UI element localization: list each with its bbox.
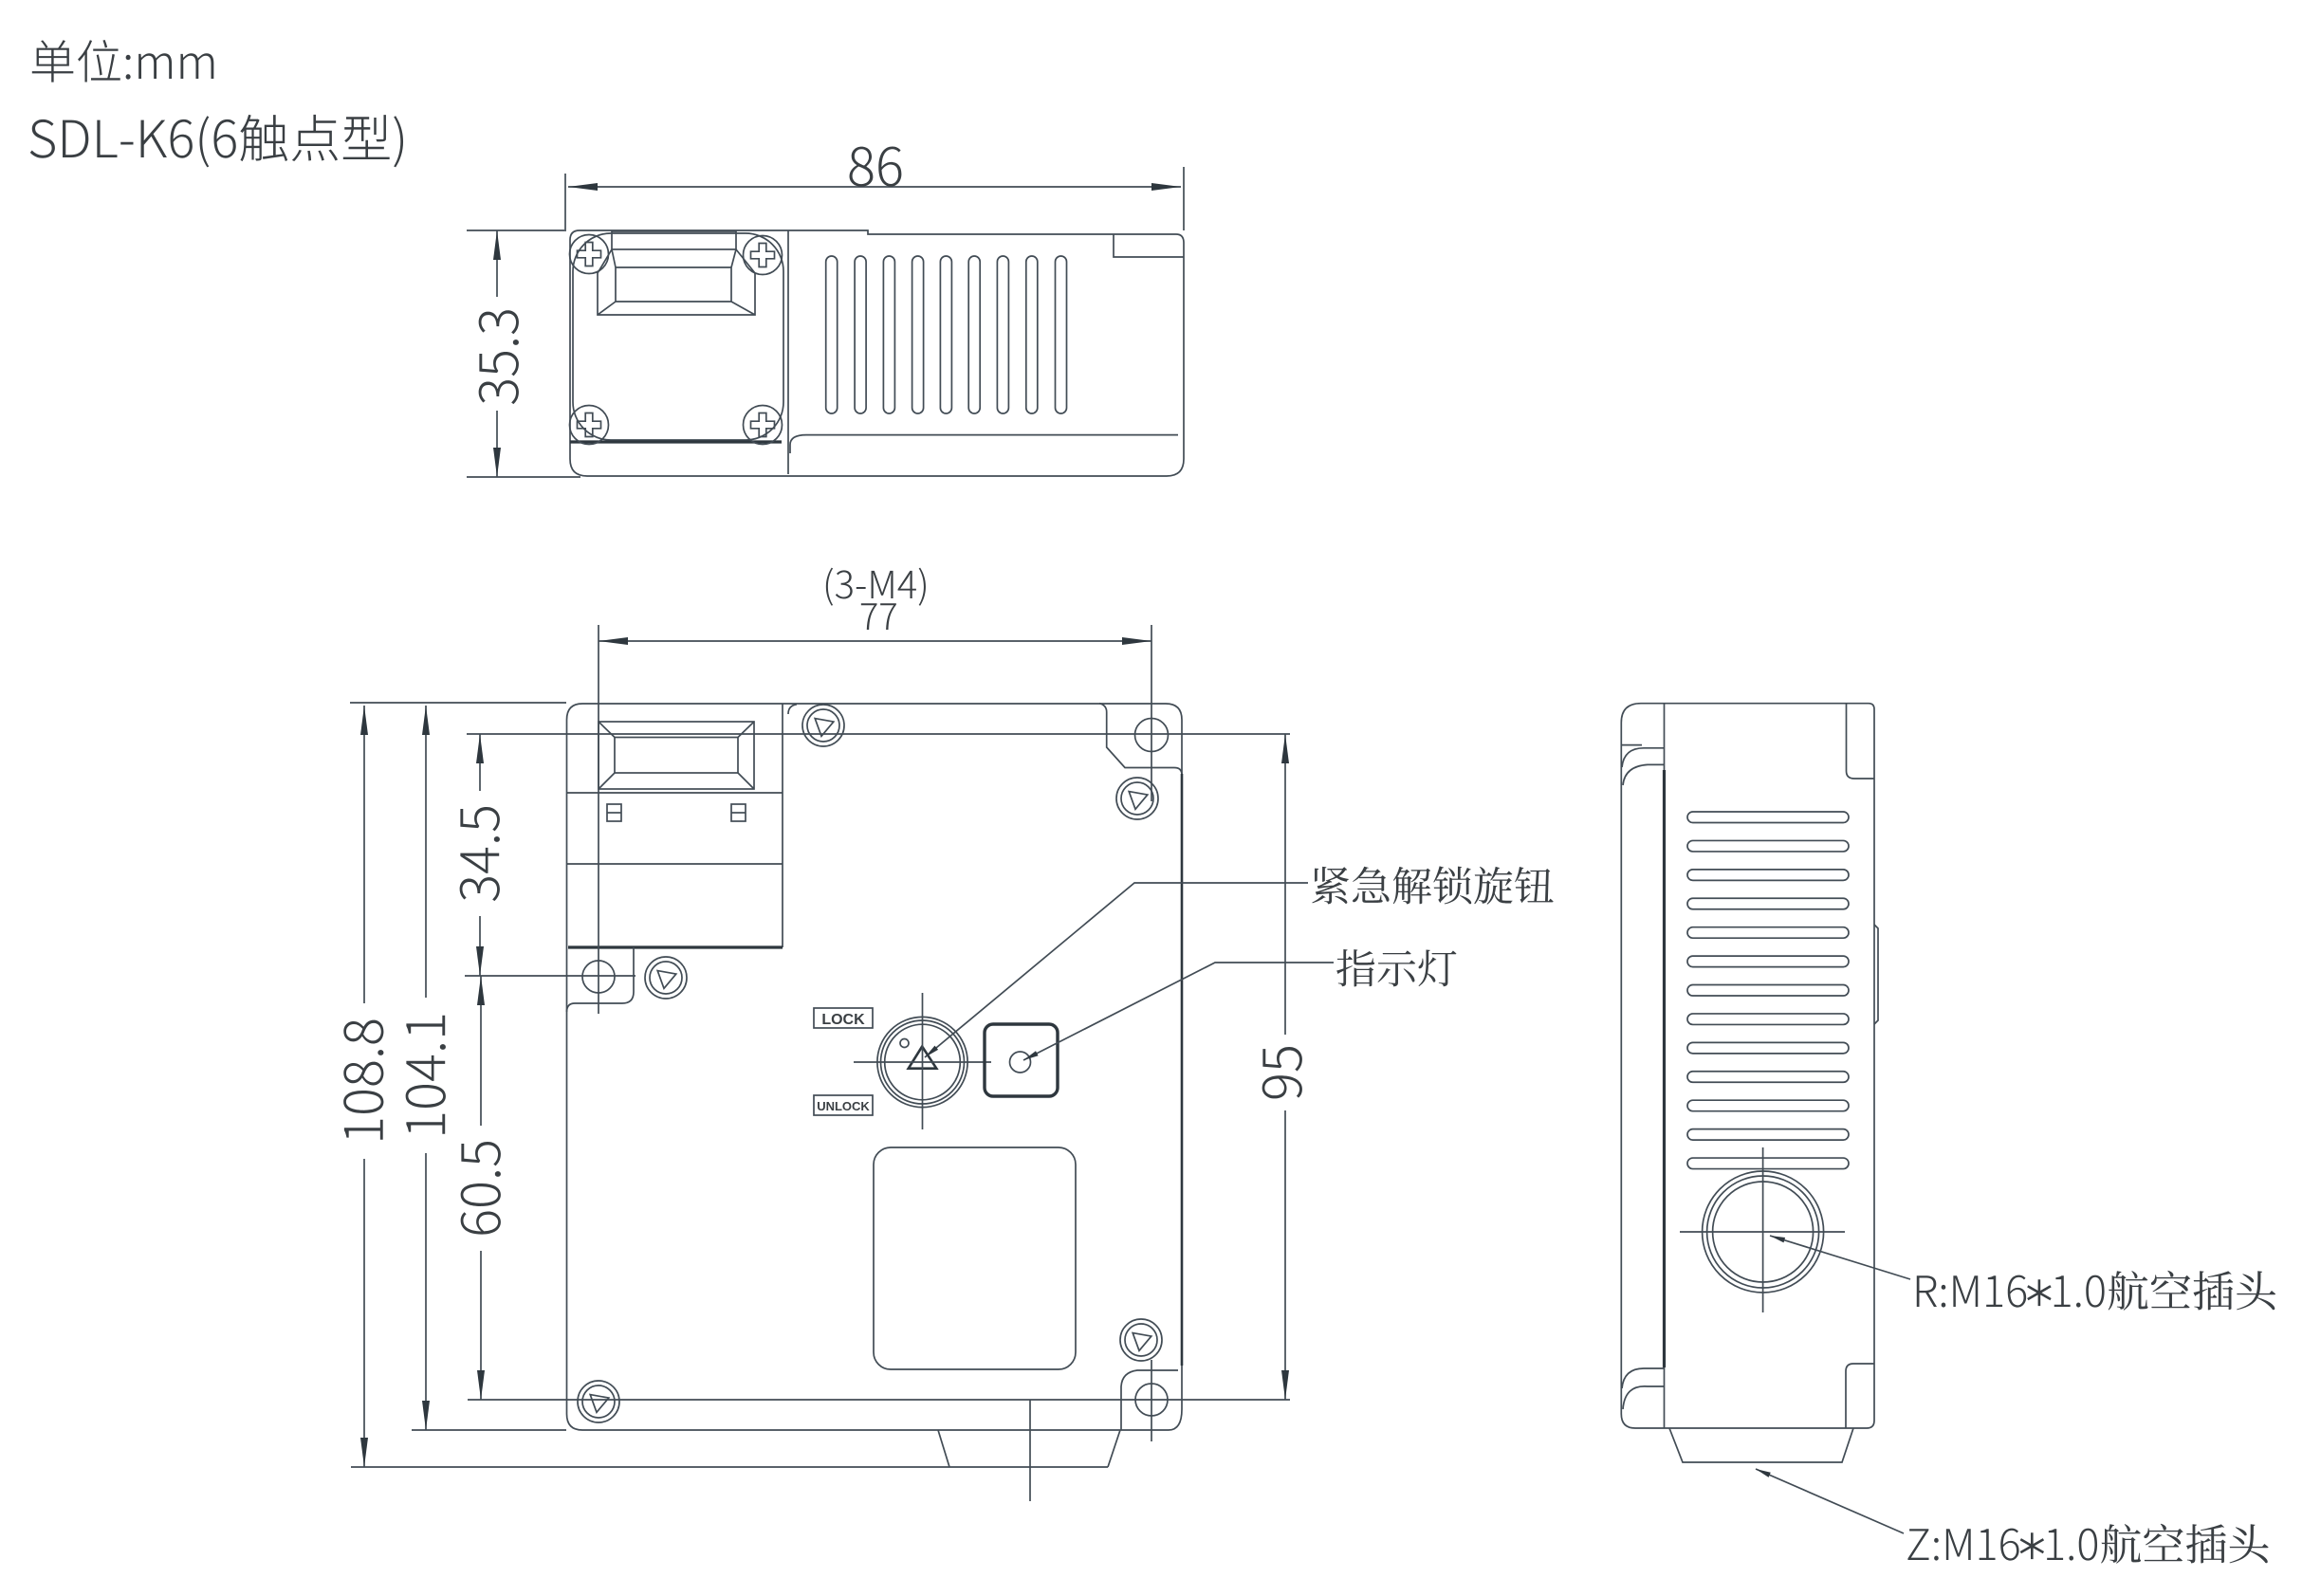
svg-text:LOCK: LOCK	[821, 1012, 865, 1028]
svg-text:UNLOCK: UNLOCK	[817, 1099, 870, 1113]
